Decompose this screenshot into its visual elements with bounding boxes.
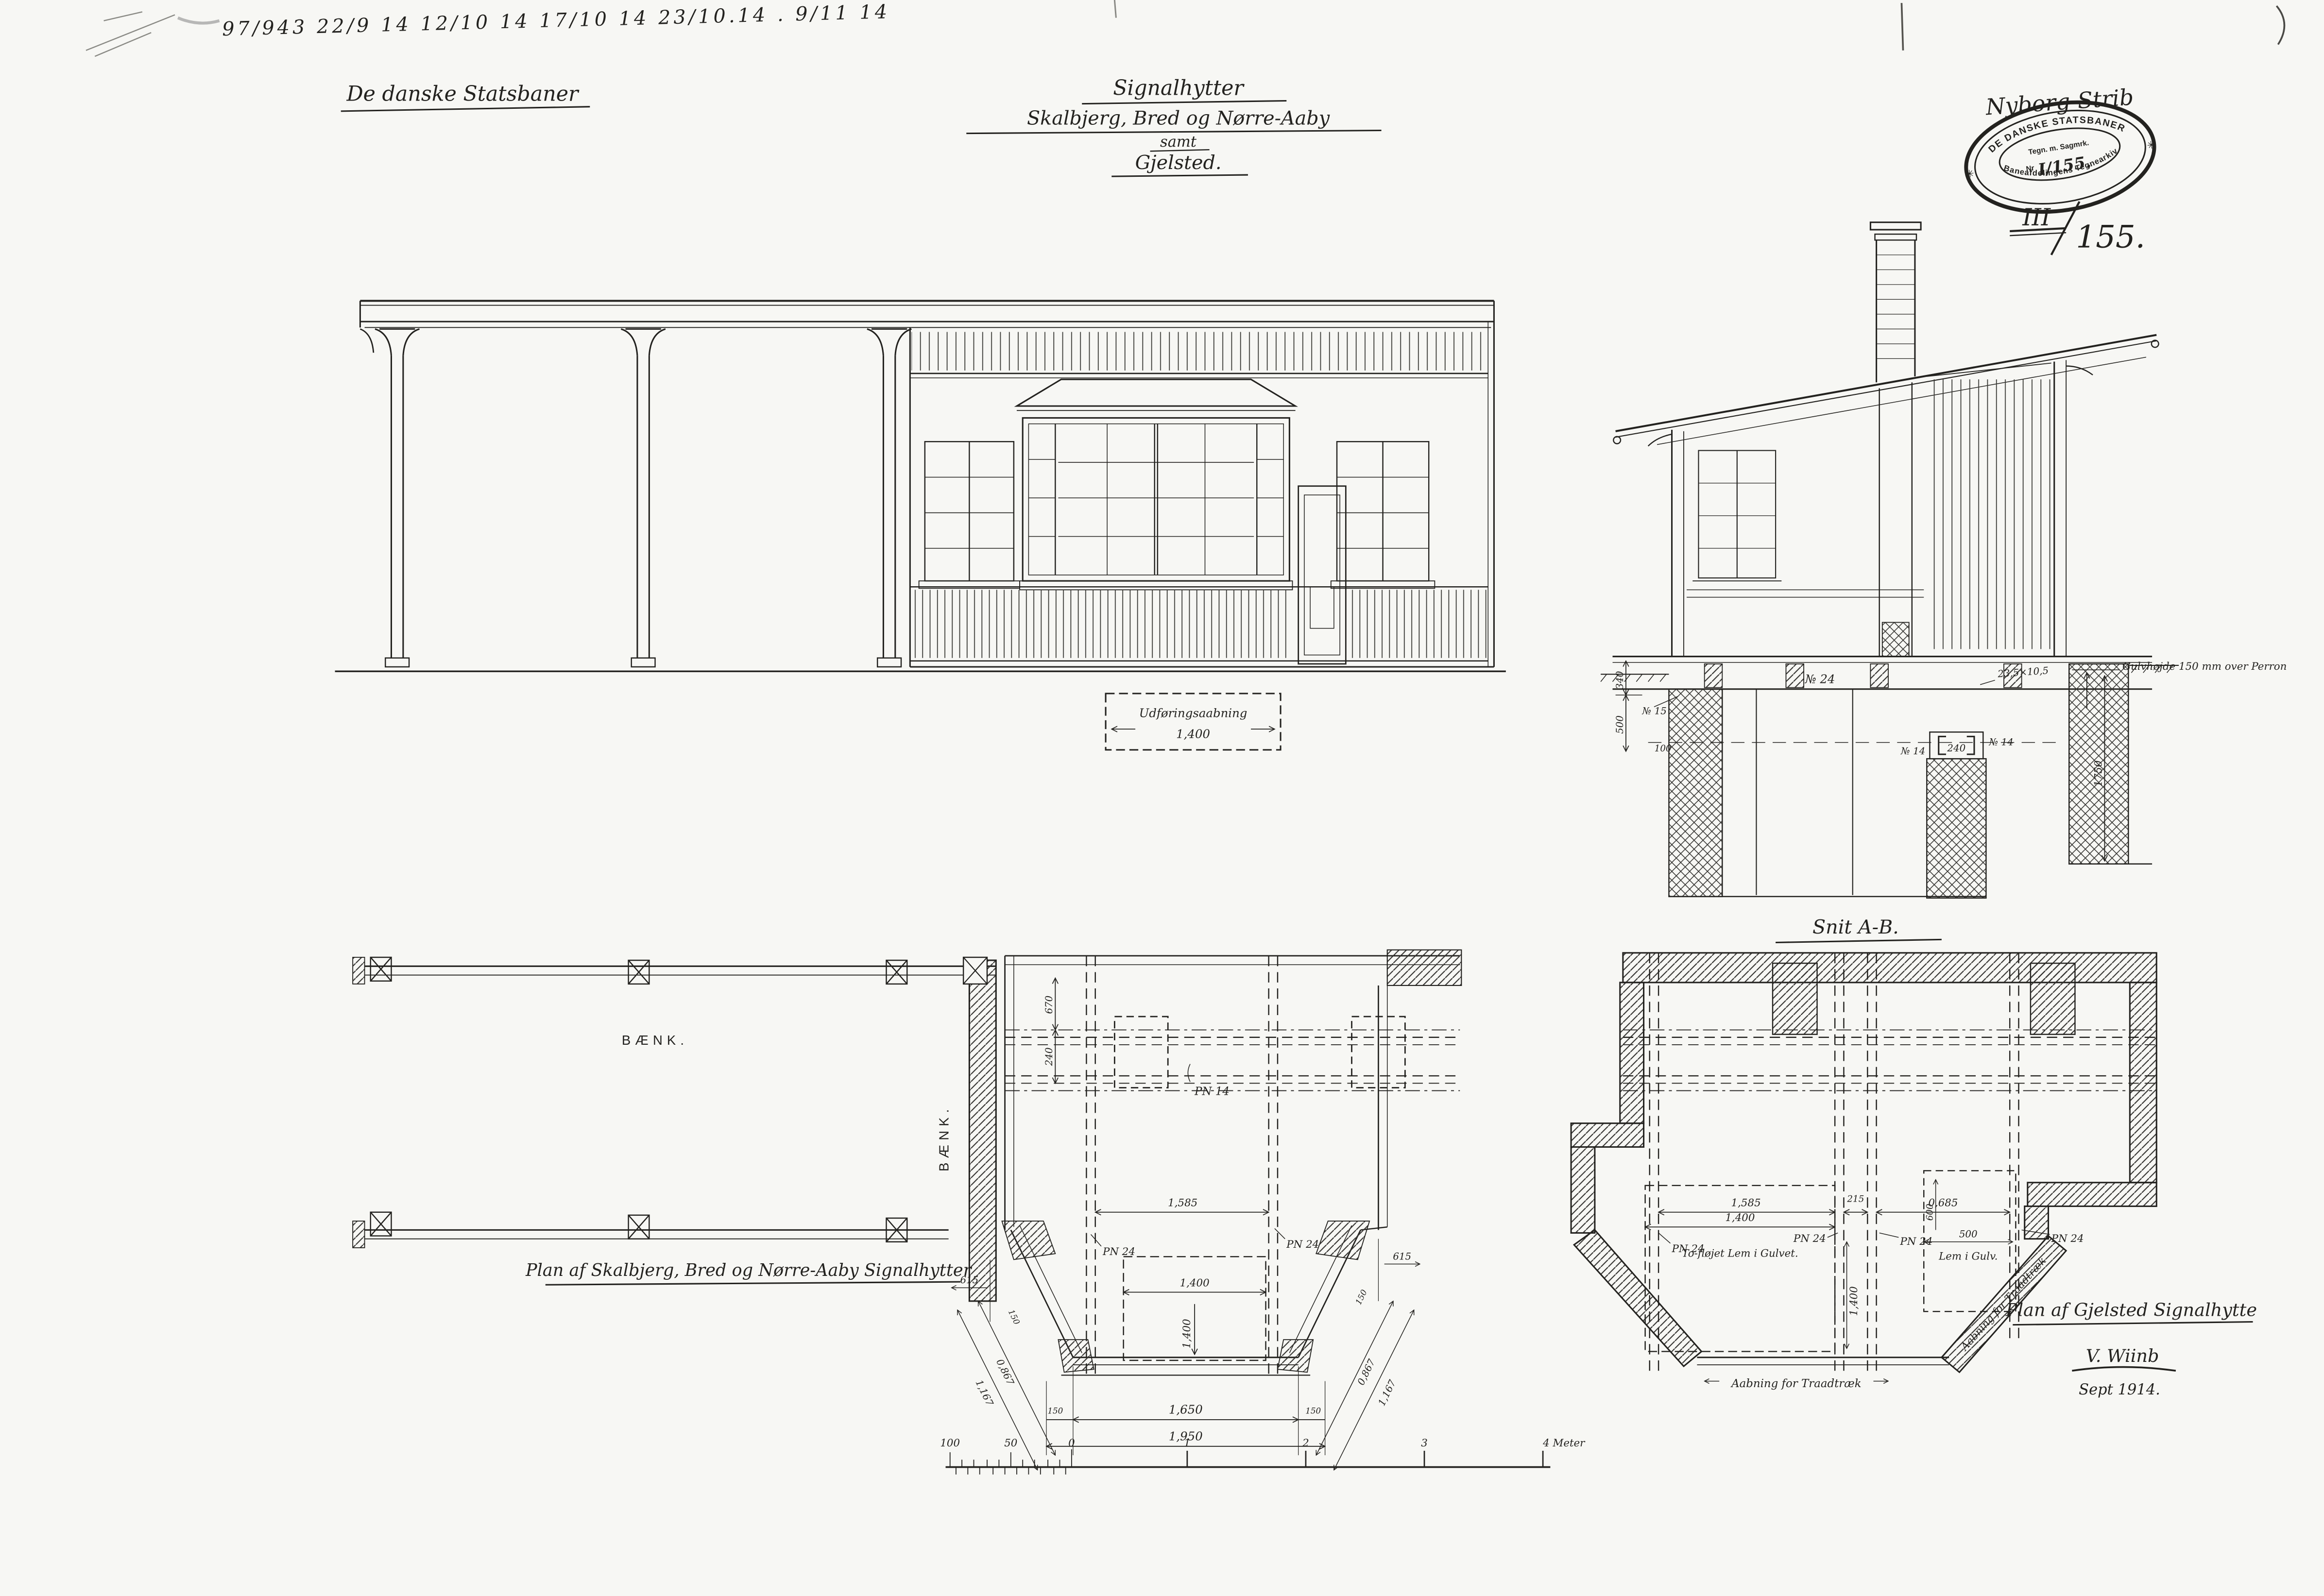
column-spacing-label: 240: [1947, 743, 1965, 754]
drawing-sheet: 97/943 22/9 14 12/10 14 17/10 14 23/10.1…: [0, 0, 2324, 1596]
gj-dim-1400-h: 1,400: [1725, 1212, 1755, 1224]
scale-label-0: 0: [1068, 1437, 1075, 1449]
dim-1650: 1,650: [1169, 1403, 1203, 1417]
gj-dim-500: 500: [1959, 1229, 1978, 1240]
scale-label-4m: 4 Meter: [1542, 1437, 1586, 1449]
stamp-star-right: ✳: [2146, 139, 2156, 152]
gj-dim-1585: 1,585: [1731, 1197, 1761, 1209]
stamp-nr-label: Nr: [2025, 164, 2034, 173]
gj-dim-1400-v: 1,400: [1848, 1286, 1860, 1316]
bench-label-side: BÆNK.: [937, 1105, 952, 1172]
pn14-label: PN 14: [1194, 1086, 1230, 1098]
dim-100: 100: [1655, 744, 1672, 754]
beam-no15-label: № 15: [1642, 706, 1667, 717]
pn24-right-label: PN 24: [1286, 1239, 1319, 1251]
gj-pn24-d: PN 24: [2051, 1233, 2084, 1245]
plan-right-caption: Plan af Gjelsted Signalhytte: [2005, 1299, 2257, 1320]
section-caption: Snit A-B.: [1812, 916, 1899, 938]
dim-500: 500: [1614, 715, 1625, 734]
company-title: De danske Statsbaner: [346, 82, 580, 106]
dim-1585: 1,585: [1168, 1197, 1197, 1209]
title-line-4: Gjelsted.: [1135, 152, 1222, 174]
dim-240: 240: [1043, 1047, 1055, 1066]
dim-1750: 1750: [2092, 760, 2104, 786]
no14-left-label: № 14: [1900, 746, 1925, 757]
scale-label-100: 100: [940, 1437, 960, 1449]
gj-pn24-b: PN 24: [1793, 1233, 1826, 1245]
bench-label-top: BÆNK.: [622, 1033, 688, 1048]
gj-dim-215: 215: [1846, 1194, 1864, 1204]
dim-615-right: 615: [1393, 1251, 1411, 1262]
signature-date: Sept 1914.: [2079, 1381, 2160, 1398]
title-line-1: Signalhytter: [1113, 76, 1245, 100]
scale-label-1: 1: [1184, 1437, 1191, 1449]
dim-1400-h: 1,400: [1180, 1277, 1210, 1289]
signature: V. Wiinb: [2086, 1345, 2159, 1366]
scale-label-3: 3: [1421, 1437, 1428, 1449]
title-line-3: samt: [1160, 134, 1197, 151]
scale-label-50: 50: [1004, 1437, 1017, 1449]
dim-615-left: 615: [960, 1274, 978, 1286]
dim-150-left: 150: [1047, 1406, 1063, 1416]
floor-height-note: Gulvhøjde 150 mm over Perron: [2122, 661, 2287, 673]
gj-lem-label: Lem i Gulv.: [1938, 1250, 1998, 1262]
dim-340: 340: [1614, 671, 1625, 690]
archive-roman: III: [2022, 204, 2051, 231]
stamp-star-left: ✳: [1965, 168, 1975, 181]
plan-left-caption: Plan af Skalbjerg, Bred og Nørre-Aaby Si…: [525, 1260, 973, 1280]
gj-wire-opening: Aabning for Traadtræk: [1730, 1377, 1862, 1390]
gj-dim-600: 600: [1925, 1204, 1935, 1221]
floor-beam-label: № 24: [1805, 672, 1835, 686]
archive-num: 155.: [2076, 220, 2145, 255]
scale-label-2: 2: [1302, 1437, 1309, 1449]
dim-150-right: 150: [1305, 1406, 1321, 1416]
title-line-2: Skalbjerg, Bred og Nørre-Aaby: [1027, 107, 1330, 129]
opening-dim: 1,400: [1176, 727, 1210, 741]
dim-670: 670: [1043, 996, 1055, 1014]
opening-label: Udføringsaabning: [1139, 706, 1247, 720]
gj-hatch-label: To-fløjet Lem i Gulvet.: [1682, 1247, 1798, 1259]
dim-1400-v: 1,400: [1181, 1319, 1193, 1348]
